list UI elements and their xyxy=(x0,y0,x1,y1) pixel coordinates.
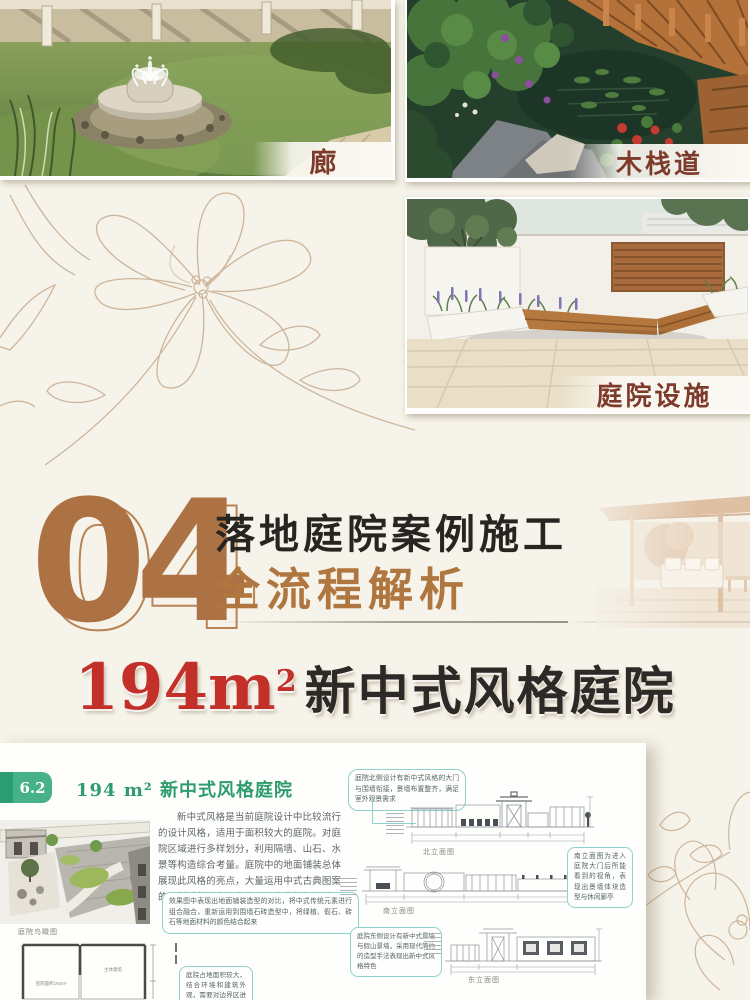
material-labels-north xyxy=(386,813,404,837)
book-page: 6.2 194 m² 新中式风格庭院 庭院鸟瞰图 新中式风格是当前庭院设计中比较… xyxy=(0,743,646,1000)
callout-pavement: 效果图中表现出地面铺装造型的对比，将中式传统元素进行组合融合，重新运用到围墙石砖… xyxy=(162,892,359,934)
caption-east: 东立面图 xyxy=(468,975,500,985)
floral-sketch-bottom xyxy=(630,780,750,1000)
photo-boardwalk-label-band: 木栈道 xyxy=(567,144,750,180)
plan-label-right: 主体建筑 xyxy=(104,966,122,973)
photo-facilities-label: 庭院设施 xyxy=(596,376,712,413)
headline-area-sup: 2 xyxy=(276,664,297,699)
plan-label-left: 后院面积194m² xyxy=(36,980,67,987)
aerial-caption: 庭院鸟瞰图 xyxy=(18,927,58,937)
photo-boardwalk-label: 木栈道 xyxy=(616,144,703,181)
floral-sketch-top xyxy=(0,165,425,475)
photo-corridor-label-band: 廊 xyxy=(253,142,393,178)
patio-faded-image xyxy=(568,488,750,628)
photo-facilities: 庭院设施 xyxy=(405,197,750,414)
photo-boardwalk: 木栈道 xyxy=(405,0,750,182)
promo-page: 廊 xyxy=(0,0,750,1000)
caption-north: 北立面图 xyxy=(423,847,455,857)
section-tab-accent xyxy=(0,772,13,803)
section-number: 04 xyxy=(30,494,240,632)
callout-plan: 庭院占地面积较大，结合环境和建筑外观，需要对边界区进行划分 xyxy=(179,966,253,1000)
photo-facilities-label-band: 庭院设施 xyxy=(557,376,750,412)
callout-south: 南立面图为进入庭院大门后所能看到的视角，表现出景墙体块造型与休闲廊亭 xyxy=(567,847,633,908)
elevation-east xyxy=(443,923,603,975)
elevation-south xyxy=(360,861,595,905)
section-tab: 6.2 xyxy=(13,772,52,803)
photo-corridor-label: 廊 xyxy=(310,141,337,180)
headline: 194m2新中式风格庭院 xyxy=(0,650,750,725)
section-title-line2: 全流程解析 xyxy=(215,553,470,618)
callout-north-connector-v xyxy=(372,797,373,823)
caption-south: 南立面图 xyxy=(383,906,415,916)
floor-plan: 后院面积194m² 主体建筑 xyxy=(20,941,162,1000)
section-tab-number: 6.2 xyxy=(19,779,45,797)
aerial-render xyxy=(0,820,150,924)
photo-corridor: 廊 xyxy=(0,0,395,180)
material-labels-south xyxy=(340,878,357,898)
elevation-north xyxy=(404,789,596,845)
headline-style-text: 新中式风格庭院 xyxy=(305,662,676,722)
headline-area: 194m xyxy=(74,650,275,725)
section-title-line1: 落地庭院案例施工 xyxy=(215,502,567,560)
plan-north-marker xyxy=(175,943,177,952)
book-heading: 194 m² 新中式风格庭院 xyxy=(76,776,293,802)
material-labels-east xyxy=(424,933,441,955)
